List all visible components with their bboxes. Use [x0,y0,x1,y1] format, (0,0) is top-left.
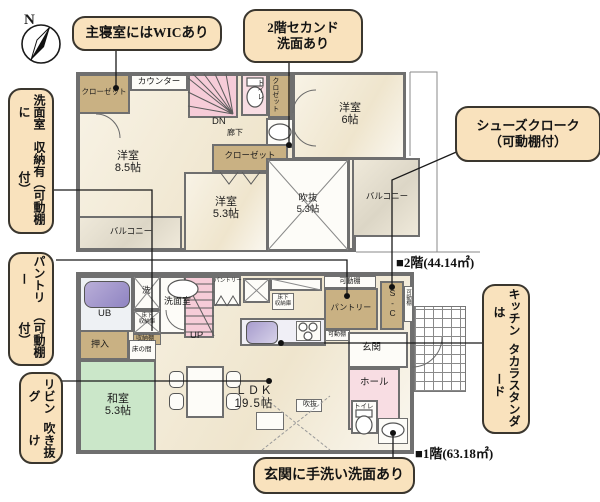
dining-table [186,366,224,418]
ub-label: UB [98,309,111,320]
room6-label: 洋室6帖 [320,102,380,127]
entrance-washbasin-room [378,418,408,444]
tokonoma-label: 床の間 [132,346,152,353]
floor-plan-page: クローゼット カウンター DN 廊下 トイレ クロゼット 洋室6帖 洋室8.5帖… [0,0,600,502]
callout-kitchen: キッチンは タカラスタンダード [482,284,530,434]
callout-shoes-cloak: シューズクローク （可動棚付） [455,106,600,162]
master-closet-label: クローゼット [80,88,128,96]
kitchen-storage-x [243,278,270,303]
cupboard [270,278,322,291]
callout-washroom-storage: 洗面室に 収納有（可動棚付） [8,88,54,234]
toilet-2f-label: トイレ [256,79,264,100]
washitsu-label: 和室5.3帖 [88,393,148,418]
compass-icon [22,25,60,63]
shelf-label: 収納棚 [136,336,154,343]
void-1f-label: 吹抜 [299,401,321,409]
underfloor-a-label: 床下収納庫 [134,313,160,325]
entrance-porch [414,306,466,392]
washroom-label: 洗面室 [164,296,191,306]
stairs-1f [184,276,214,338]
room85-label: 洋室8.5帖 [98,150,158,175]
compass-north-label: N [24,12,35,29]
stairs-2f [188,74,238,118]
pantry-room-label: パントリー [326,304,376,313]
genkan-label: 玄関 [362,343,381,354]
movable-shelf-side-label: 可動棚 [405,289,411,306]
movable-shelf-top-label: 可動棚 [325,278,375,286]
up-label: UP [190,331,203,342]
dn-label: DN [212,117,226,128]
callout-entrance-wash: 玄関に手洗い洗面あり [253,457,415,494]
area-1f-label: ■1階(63.18㎡) [415,443,493,462]
hall-label: ホール [360,378,389,389]
chair [169,371,184,388]
callout-pantry: パントリー （可動棚付） [8,252,54,366]
area-2f-label: ■2階(44.14㎡) [396,252,474,271]
chair [169,393,184,410]
pantry-small-label: パントリー [214,278,240,284]
callout-living-void: リビング 吹き抜け [19,372,63,464]
bathtub [84,281,130,308]
counter-label: カウンター [131,77,187,87]
small-closet-2f-label: クロゼット [271,77,279,117]
shoes-cloak-label: S-C [387,288,397,318]
stove [296,321,321,341]
ldk-label: ＬＤＫ19.5帖 [222,385,286,411]
callout-second-wash: 2階セカンド 洗面あり [243,9,363,63]
underfloor-b-label: 床下収納庫 [273,295,293,307]
void-2f-label: 吹抜5.3帖 [283,194,333,215]
toilet-1f-label: トイレ [354,403,374,410]
corridor-label: 廊下 [227,129,243,138]
tv-board [256,412,284,430]
kitchen-sink [246,321,278,344]
closet-2f-center-label: クローゼット [214,151,286,161]
balcony-left-label: バルコニー [96,227,166,237]
laundry-label: 洗 [142,286,151,296]
movable-shelf-bottom-label: 可動棚 [325,332,349,339]
oshiire-label: 押入 [91,339,109,349]
room53-label: 洋室5.3帖 [196,196,256,221]
balcony-right-label: バルコニー [362,192,412,202]
callout-wic: 主寝室にはWICあり [72,16,222,51]
